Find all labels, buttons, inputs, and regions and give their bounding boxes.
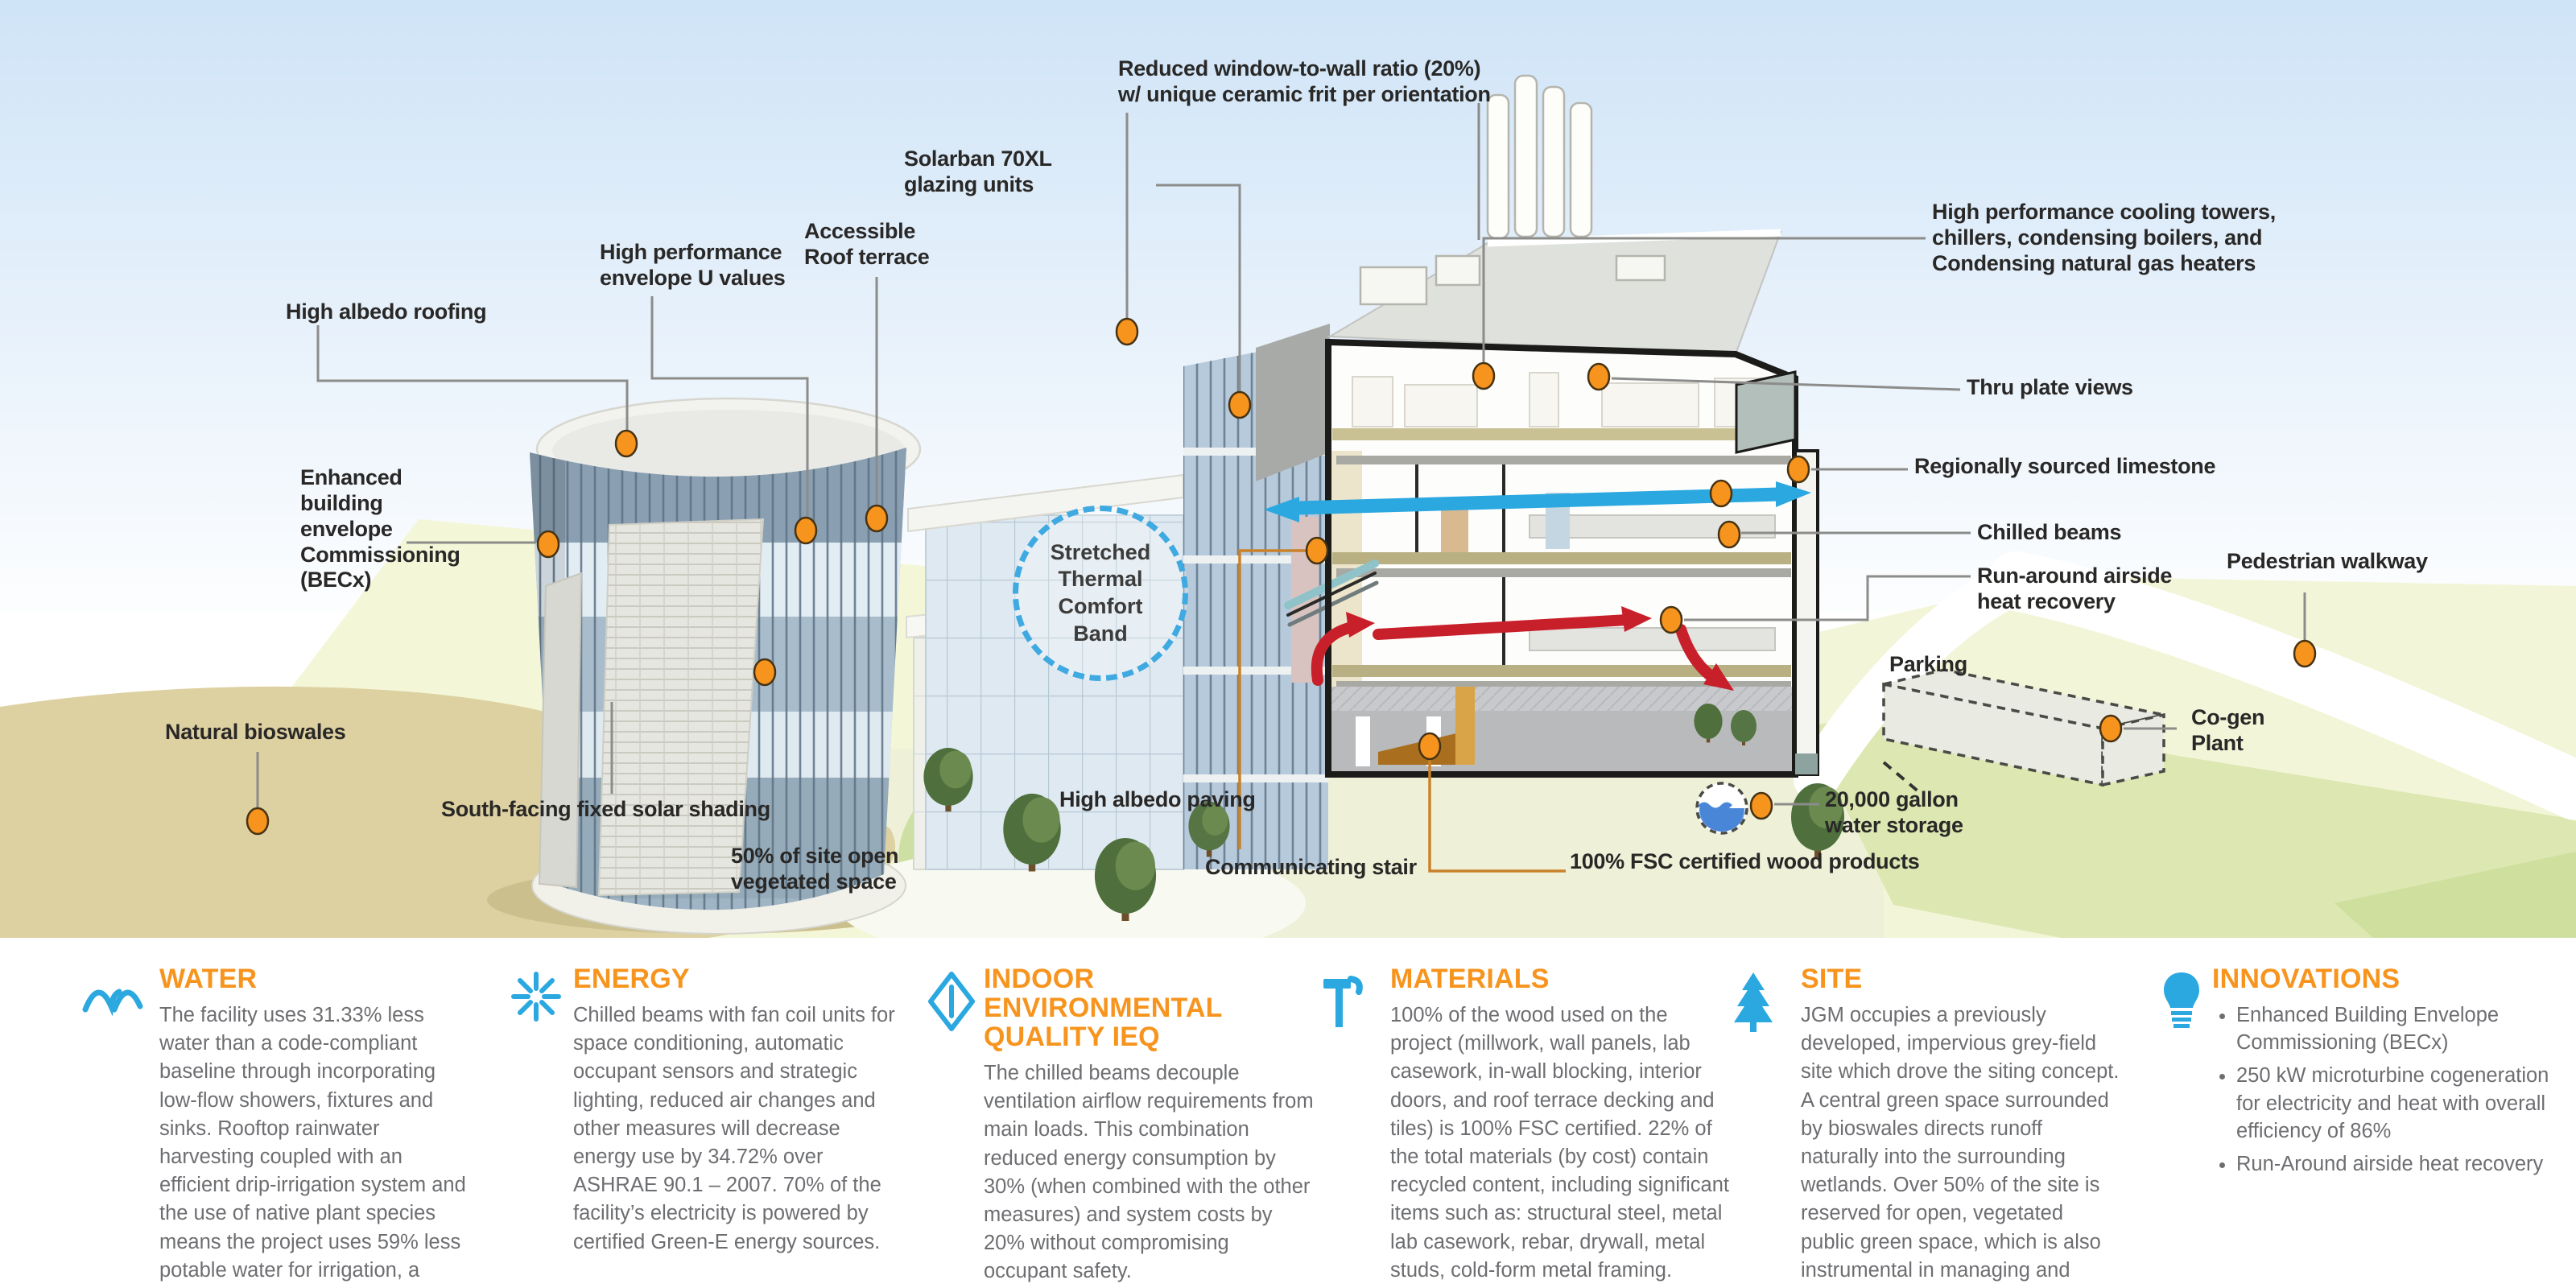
legend-water-title: WATER bbox=[159, 964, 477, 993]
callout-cooling-towers: High performance cooling towers, chiller… bbox=[1932, 200, 2310, 277]
east-wing bbox=[1795, 451, 1818, 774]
legend-site-title: SITE bbox=[1801, 964, 2120, 993]
legend-materials-body: 100% of the wood used on the project (mi… bbox=[1390, 1001, 1732, 1285]
callout-reduced-window: Reduced window-to-wall ratio (20%) w/ un… bbox=[1118, 56, 1617, 108]
pine-tree-icon bbox=[1728, 971, 1779, 1034]
diamond-icon bbox=[927, 971, 976, 1032]
lightbulb-icon bbox=[2161, 971, 2202, 1030]
floor-levels bbox=[1331, 373, 1795, 774]
callout-cogen-plant: Co-gen Plant bbox=[2191, 705, 2312, 757]
callout-natural-bioswales: Natural bioswales bbox=[165, 720, 345, 745]
callout-thru-plate-views: Thru plate views bbox=[1967, 375, 2133, 401]
callout-communicating-stair: Communicating stair bbox=[1205, 855, 1417, 881]
legend-energy-body: Chilled beams with fan coil units for sp… bbox=[573, 1001, 900, 1257]
innovation-item: Run-Around airside heat recovery bbox=[2236, 1150, 2576, 1178]
legend-ieq-title: INDOOR ENVIRONMENTAL QUALITY IEQ bbox=[984, 964, 1315, 1051]
legend-water-body: The facility uses 31.33% less water than… bbox=[159, 1001, 477, 1288]
limestone-wedge-small bbox=[539, 573, 581, 887]
starburst-icon bbox=[510, 971, 562, 1022]
infographic-canvas: Reduced window-to-wall ratio (20%) w/ un… bbox=[0, 0, 2576, 1288]
callout-south-facing-shading: South-facing fixed solar shading bbox=[441, 797, 770, 823]
callout-water-storage: 20,000 gallon water storage bbox=[1825, 787, 2026, 839]
callout-accessible-roof: Accessible Roof terrace bbox=[804, 219, 997, 270]
callout-solarban: Solarban 70XL glazing units bbox=[904, 147, 1146, 198]
hammer-icon bbox=[1314, 971, 1365, 1030]
legend-innovations-title: INNOVATIONS bbox=[2212, 964, 2576, 993]
legend-energy-title: ENERGY bbox=[573, 964, 900, 993]
legend-innovations-list: Enhanced Building Envelope Commissioning… bbox=[2212, 1001, 2576, 1178]
callout-envelope-u-values: High performance envelope U values bbox=[600, 240, 833, 291]
legend-site-body: JGM occupies a previously developed, imp… bbox=[1801, 1001, 2120, 1288]
callout-fsc-wood: 100% FSC certified wood products bbox=[1570, 849, 1919, 875]
callout-pedestrian-walkway: Pedestrian walkway bbox=[2227, 549, 2428, 575]
callout-becx: Enhanced building envelope Commissioning… bbox=[300, 465, 461, 593]
legend-ieq-body: The chilled beams decouple ventilation a… bbox=[984, 1059, 1315, 1286]
callout-run-around: Run-around airside heat recovery bbox=[1977, 563, 2211, 615]
waves-icon bbox=[80, 971, 147, 1018]
callout-chilled-beams: Chilled beams bbox=[1977, 520, 2121, 546]
legend-materials-title: MATERIALS bbox=[1390, 964, 1732, 993]
water-tank-icon bbox=[1697, 783, 1747, 833]
callout-fifty-percent-site: 50% of site open vegetated space bbox=[731, 844, 924, 895]
callout-limestone: Regionally sourced limestone bbox=[1914, 454, 2215, 480]
callout-high-albedo-roofing: High albedo roofing bbox=[286, 299, 486, 325]
callout-parking: Parking bbox=[1889, 652, 1967, 678]
callout-thermal-band: Stretched Thermal Comfort Band bbox=[1051, 539, 1151, 648]
thermal-comfort-band-circle: Stretched Thermal Comfort Band bbox=[1013, 506, 1188, 681]
innovation-item: Enhanced Building Envelope Commissioning… bbox=[2236, 1001, 2576, 1056]
callout-high-albedo-paving: High albedo paving bbox=[1059, 787, 1256, 813]
innovation-item: 250 kW microturbine cogeneration for ele… bbox=[2236, 1062, 2576, 1144]
